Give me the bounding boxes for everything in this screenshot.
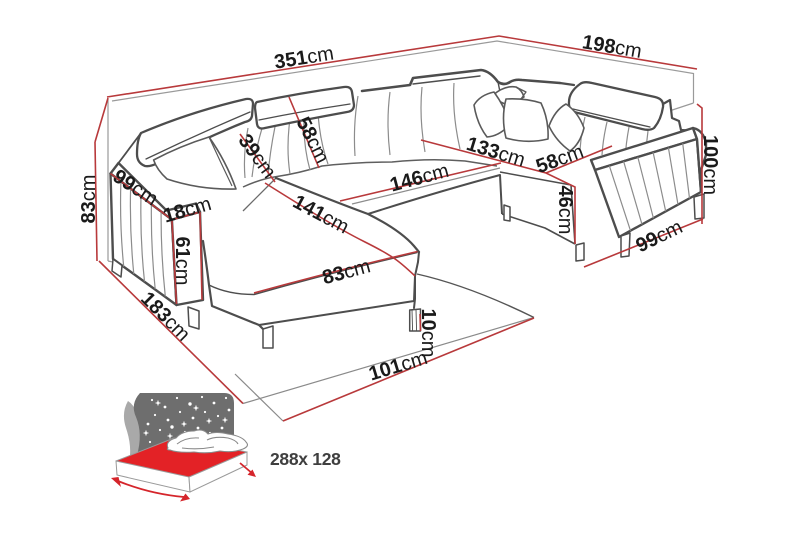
svg-text:351cm: 351cm bbox=[273, 43, 336, 74]
svg-text:10cm: 10cm bbox=[417, 309, 439, 358]
svg-text:46cm: 46cm bbox=[554, 186, 576, 235]
svg-text:288x 128: 288x 128 bbox=[270, 449, 341, 469]
svg-text:100cm: 100cm bbox=[699, 135, 721, 195]
svg-text:198cm: 198cm bbox=[581, 31, 644, 63]
svg-text:83cm: 83cm bbox=[78, 175, 100, 224]
svg-text:61cm: 61cm bbox=[171, 237, 193, 286]
